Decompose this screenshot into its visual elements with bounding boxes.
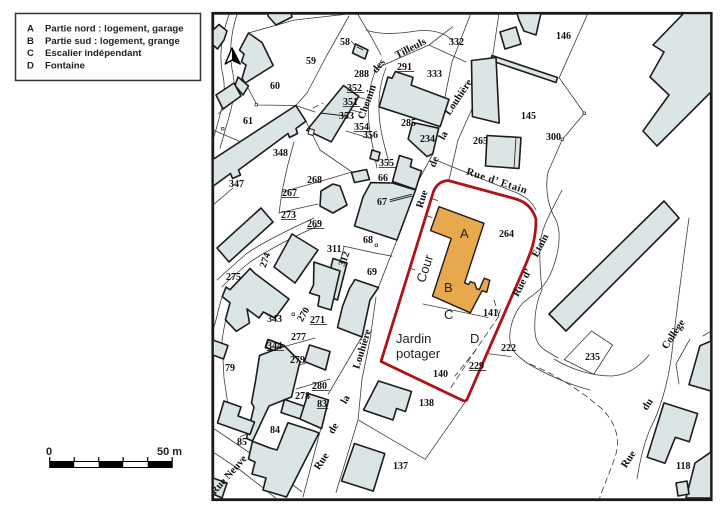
svg-text:C: C [444, 307, 453, 322]
svg-text:235: 235 [585, 352, 600, 363]
svg-text:D: D [27, 60, 34, 71]
svg-text:300: 300 [546, 132, 561, 143]
svg-text:278: 278 [295, 391, 310, 402]
svg-text:61: 61 [243, 116, 253, 127]
svg-text:0: 0 [46, 446, 52, 458]
svg-text:Jardin: Jardin [396, 331, 431, 346]
svg-text:275: 275 [226, 272, 241, 283]
svg-text:118: 118 [676, 461, 690, 472]
svg-text:288: 288 [354, 69, 369, 80]
svg-text:Escalier indépendant: Escalier indépendant [45, 48, 142, 59]
svg-text:285: 285 [401, 118, 416, 129]
svg-text:343: 343 [267, 314, 282, 325]
svg-text:Partie sud : logement, grange: Partie sud : logement, grange [45, 36, 180, 47]
svg-text:B: B [444, 280, 453, 295]
svg-text:A: A [460, 226, 469, 241]
svg-text:potager: potager [396, 346, 441, 361]
svg-text:146: 146 [556, 31, 571, 42]
svg-text:145: 145 [521, 111, 536, 122]
svg-text:50 m: 50 m [157, 446, 182, 458]
svg-text:68: 68 [363, 235, 373, 246]
svg-text:A: A [27, 24, 34, 35]
svg-text:279: 279 [290, 355, 305, 366]
svg-text:B: B [27, 36, 34, 47]
svg-text:265: 265 [473, 136, 488, 147]
svg-text:58: 58 [340, 37, 350, 48]
svg-text:79: 79 [225, 363, 235, 374]
svg-text:141/: 141/ [483, 308, 501, 319]
svg-text:85: 85 [237, 437, 247, 448]
svg-text:C: C [27, 48, 34, 59]
svg-text:311: 311 [327, 244, 341, 255]
svg-text:277: 277 [291, 332, 306, 343]
svg-text:347: 347 [229, 179, 244, 190]
svg-text:137: 137 [393, 461, 408, 472]
svg-text:332: 332 [449, 37, 464, 48]
svg-text:D: D [470, 331, 479, 346]
svg-text:67: 67 [377, 197, 387, 208]
svg-text:222: 222 [501, 343, 516, 354]
svg-text:268: 268 [307, 175, 322, 186]
svg-text:69: 69 [367, 267, 377, 278]
svg-text:353: 353 [339, 111, 354, 122]
svg-text:348: 348 [273, 148, 288, 159]
svg-text:66: 66 [378, 173, 388, 184]
svg-text:138: 138 [419, 398, 434, 409]
svg-text:Partie nord : logement, garage: Partie nord : logement, garage [45, 24, 184, 35]
svg-text:333: 333 [427, 69, 442, 80]
svg-text:140: 140 [433, 369, 448, 380]
svg-text:264: 264 [499, 229, 514, 240]
svg-text:Fontaine: Fontaine [45, 60, 85, 71]
svg-text:59: 59 [306, 56, 316, 67]
svg-text:234: 234 [420, 134, 435, 145]
svg-text:60: 60 [270, 81, 280, 92]
svg-text:84: 84 [270, 425, 280, 436]
